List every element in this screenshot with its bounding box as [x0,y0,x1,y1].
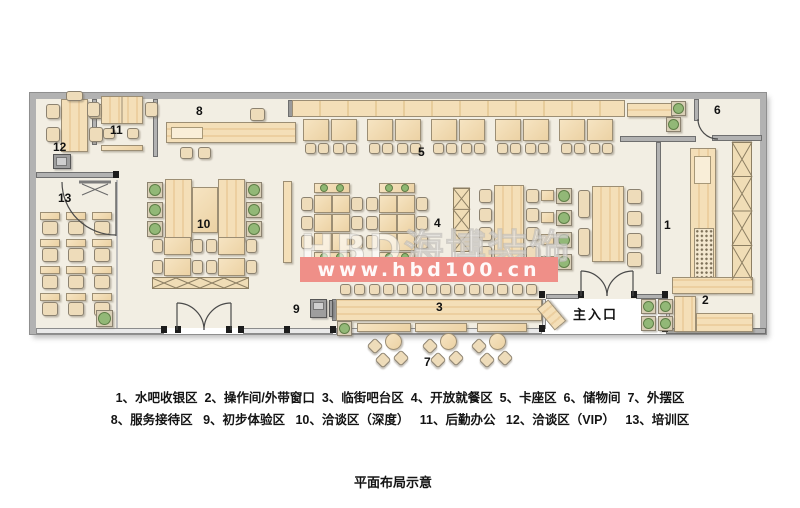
dining-table [379,195,397,213]
zone-marker-13: 13 [58,192,71,204]
wall [656,142,661,274]
door-post [161,326,167,333]
plant-leaves [558,190,570,202]
door-post [330,326,336,333]
training-desk [66,293,86,301]
training-desk [92,293,112,301]
plant [658,299,673,314]
vip-chair [46,104,60,119]
door-post [578,291,584,298]
dining-chair [351,197,363,211]
bar-stool [469,284,480,295]
zone-marker-2: 2 [702,294,709,306]
plant-leaves [660,318,671,329]
training-chair [94,275,110,289]
booth-bench [292,100,625,117]
planter-greens [320,184,328,192]
vip-chair [89,127,103,142]
plant-leaves [149,223,161,235]
dining-chair [627,211,642,226]
zone-marker-5: 5 [418,146,425,158]
door-post [113,171,119,178]
dining-chair [152,239,163,253]
zone-marker-8: 8 [196,105,203,117]
door-post [539,291,545,298]
conference-table [218,179,245,241]
office-stool [127,128,139,139]
outdoor-table [489,333,506,350]
zone-marker-1: 1 [664,219,671,231]
booth-table [587,119,613,141]
partition-screen [283,181,292,263]
long-dining-table [592,186,624,262]
planter-greens [336,184,344,192]
coffee-grinder [329,300,333,317]
zone-marker-6: 6 [714,104,721,116]
booth-stool [497,143,508,154]
outdoor-chair [375,352,392,369]
plant [666,117,681,132]
training-desk [40,293,60,301]
coffee-machine-top [313,302,324,310]
office-shelf [101,145,143,151]
training-desk [40,266,60,274]
watermark-brand: HBD海博装饰 [296,217,576,261]
training-chair [94,221,110,235]
dining-table [164,258,191,276]
reception-desk-inset [171,127,203,139]
dining-chair [192,260,203,274]
booth-table [459,119,485,141]
door-post [662,291,668,298]
bar-stool [483,284,494,295]
zone-marker-3: 3 [436,301,443,313]
booth-table [331,119,357,141]
booth-table [367,119,393,141]
plant-leaves [248,204,260,216]
training-chair [94,248,110,262]
outdoor-bench [357,323,411,332]
training-desk [92,239,112,247]
plant [337,321,352,336]
green-chair [147,202,163,218]
bar-stool [383,284,394,295]
training-chair [68,302,84,316]
zone-marker-12: 12 [53,141,66,153]
legend-line-2: 8、服务接待区 9、初步体验区 10、洽谈区（深度） 11、后勤办公 12、洽谈… [0,409,800,428]
zone-marker-9: 9 [293,303,300,315]
green-chair [246,202,262,218]
bar-stool [354,284,365,295]
booth-table [303,119,329,141]
training-desk [40,212,60,220]
outdoor-bench [415,323,467,332]
booth-table [395,119,421,141]
dining-chair [192,239,203,253]
bar-stool [440,284,451,295]
tv-box-screen [56,157,67,166]
booth-stool [525,143,536,154]
booth-stool [589,143,600,154]
side-table [541,190,554,201]
bar-stool [340,284,351,295]
reception-stool [198,147,211,159]
plant [658,316,673,331]
entrance-label: 主入口 [573,308,618,321]
booth-stool [305,143,316,154]
door-post [226,326,232,333]
door-post [175,326,181,333]
training-chair [42,248,58,262]
booth-stool [474,143,485,154]
dining-chair [301,197,313,211]
display-panel [694,228,714,278]
plant-leaves [643,318,654,329]
training-chair [42,302,58,316]
booth-stool [346,143,357,154]
zone-marker-7: 7 [424,356,431,368]
dining-chair [627,189,642,204]
plant-leaves [149,204,161,216]
training-chair [42,275,58,289]
outdoor-chair [393,350,410,367]
dining-chair [152,260,163,274]
bar-stool [397,284,408,295]
booth-stool [397,143,408,154]
booth-stool [602,143,613,154]
reception-stool [250,108,265,121]
dining-chair [526,189,539,203]
dining-chair [416,197,428,211]
conference-table [165,179,192,241]
bar-inset [694,156,711,184]
plant-leaves [673,103,684,114]
watermark-url: www.hbd100.cn [317,259,540,281]
booth-table [523,119,549,141]
vip-chair [66,91,83,101]
plant-leaves [248,223,260,235]
glass-partition [116,180,118,328]
green-chair [556,188,572,204]
operation-counter [696,313,753,332]
training-chair [68,275,84,289]
dining-table [164,237,191,255]
dining-table [314,195,332,213]
dining-chair [479,189,492,203]
plant [96,310,113,327]
plant [641,316,656,331]
plant-leaves [668,119,679,130]
door-post [631,291,637,298]
green-chair [147,182,163,198]
dining-chair [366,197,378,211]
green-chair [246,221,262,237]
office-chair [145,102,158,117]
dining-chair [246,239,257,253]
wall [694,99,699,121]
outdoor-chair [497,350,514,367]
outdoor-chair [448,350,465,367]
training-desk [66,266,86,274]
booth-stool [333,143,344,154]
plant-leaves [98,312,111,325]
training-chair [42,221,58,235]
dining-chair [627,252,642,267]
booth-stool [510,143,521,154]
door-post [539,325,545,332]
wall-bench [627,103,673,117]
booth-table [559,119,585,141]
bar-stool [412,284,423,295]
outdoor-chair [430,352,447,369]
bench-seat [578,228,590,256]
dining-chair [206,260,217,274]
legend-line-1: 1、水吧收银区 2、操作间/外带窗口 3、临街吧台区 4、开放就餐区 5、卡座区… [0,387,800,406]
operation-counter [672,277,753,294]
outdoor-table [385,333,402,350]
plan-caption: 平面布局示意 [0,472,786,491]
bar-stool [369,284,380,295]
bench-seat [578,190,590,218]
booth-stool [369,143,380,154]
outdoor-bench [477,323,527,332]
booth-stool [561,143,572,154]
outdoor-table [440,333,457,350]
booth-table [431,119,457,141]
training-desk [66,212,86,220]
dining-table [218,237,245,255]
booth-stool [461,143,472,154]
floor-plan-canvas: 12345678910111213 主入口 HBD海博装饰 www.hbd100… [0,0,800,508]
training-desk [40,239,60,247]
door-post [238,326,244,333]
wall [712,135,762,141]
zone-marker-11: 11 [110,124,123,136]
green-chair [147,221,163,237]
plant-leaves [248,184,260,196]
dining-table [218,258,245,276]
door-post [284,326,290,333]
operation-counter [674,296,696,332]
truss-bench [152,277,249,289]
training-chair [68,221,84,235]
booth-stool [574,143,585,154]
dining-chair [627,233,642,248]
office-chair [87,102,100,117]
dining-chair [246,260,257,274]
bar-stool [526,284,537,295]
green-chair [246,182,262,198]
booth-stool [446,143,457,154]
plant-leaves [339,323,350,334]
plant [641,299,656,314]
plant [671,101,686,116]
bar-stool [454,284,465,295]
booth-stool [318,143,329,154]
dining-table [397,195,415,213]
wall [36,172,116,178]
plant-leaves [660,301,671,312]
outdoor-chair [479,352,496,369]
watermark-band: www.hbd100.cn [300,257,558,282]
dining-table [332,195,350,213]
planter-greens [385,184,393,192]
planter-greens [401,184,409,192]
office-desk [101,96,143,124]
window-wall [36,328,164,334]
dining-chair [206,239,217,253]
booth-stool [538,143,549,154]
bar-stool [497,284,508,295]
booth-table [495,119,521,141]
booth-stool [382,143,393,154]
storage-cabinet [732,142,752,280]
plant-leaves [149,184,161,196]
booth-stool [433,143,444,154]
training-desk [92,266,112,274]
reception-stool [180,147,193,159]
bar-stool [426,284,437,295]
zone-marker-10: 10 [197,218,210,230]
bar-stool [512,284,523,295]
training-desk [92,212,112,220]
plant-leaves [643,301,654,312]
training-desk [66,239,86,247]
training-chair [68,248,84,262]
